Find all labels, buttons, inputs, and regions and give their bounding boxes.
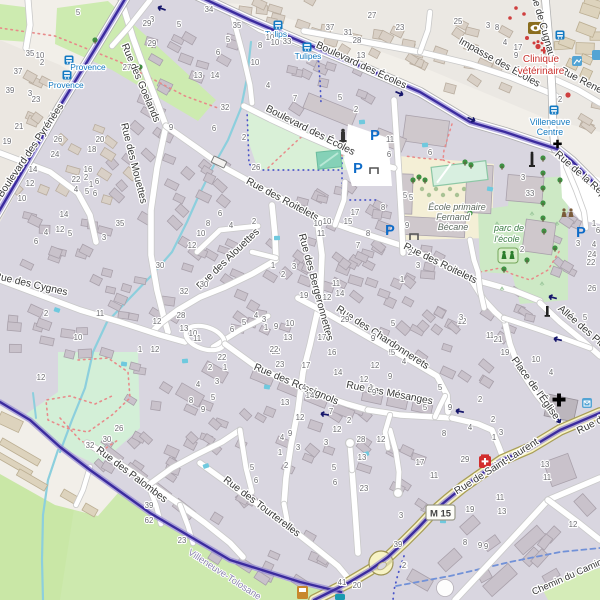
svg-text:5: 5 — [409, 193, 414, 202]
svg-text:39: 39 — [394, 540, 403, 549]
svg-text:9: 9 — [514, 51, 518, 60]
svg-text:24: 24 — [51, 150, 60, 159]
svg-text:2: 2 — [491, 415, 495, 424]
svg-text:2: 2 — [208, 363, 212, 372]
svg-text:4: 4 — [280, 433, 285, 442]
svg-text:12: 12 — [333, 425, 342, 434]
svg-text:11: 11 — [317, 229, 325, 238]
svg-text:28: 28 — [357, 435, 366, 444]
svg-text:32: 32 — [180, 287, 189, 296]
svg-text:5: 5 — [423, 403, 428, 412]
svg-text:6: 6 — [333, 478, 337, 487]
svg-text:10: 10 — [74, 333, 83, 342]
svg-text:12: 12 — [26, 179, 35, 188]
svg-text:32: 32 — [86, 441, 95, 450]
svg-text:1: 1 — [89, 180, 93, 189]
svg-text:8: 8 — [442, 429, 446, 438]
svg-text:26: 26 — [588, 284, 597, 293]
svg-text:5: 5 — [177, 20, 182, 29]
svg-text:2: 2 — [520, 245, 524, 254]
svg-text:5: 5 — [438, 383, 443, 392]
svg-text:30: 30 — [103, 435, 112, 444]
svg-text:Provence: Provence — [70, 62, 106, 72]
svg-text:17: 17 — [318, 333, 327, 342]
svg-text:6: 6 — [34, 237, 38, 246]
svg-text:14: 14 — [334, 368, 343, 377]
svg-text:5: 5 — [250, 463, 255, 472]
svg-text:14: 14 — [60, 210, 69, 219]
svg-text:6: 6 — [387, 150, 391, 159]
svg-text:3: 3 — [324, 438, 328, 447]
svg-text:32: 32 — [221, 103, 230, 112]
svg-text:23: 23 — [32, 95, 41, 104]
svg-text:8: 8 — [206, 219, 210, 228]
svg-text:5: 5 — [391, 319, 396, 328]
svg-text:8: 8 — [463, 538, 467, 547]
svg-text:31: 31 — [344, 28, 353, 37]
svg-text:26: 26 — [54, 135, 63, 144]
svg-text:19: 19 — [3, 137, 12, 146]
svg-text:12: 12 — [377, 435, 386, 444]
svg-text:2: 2 — [40, 58, 44, 67]
svg-text:Provence: Provence — [48, 80, 84, 90]
svg-text:9: 9 — [484, 542, 488, 551]
svg-text:1: 1 — [492, 433, 496, 442]
svg-text:10: 10 — [18, 194, 27, 203]
svg-text:3: 3 — [499, 428, 503, 437]
svg-text:parc de: parc de — [493, 223, 524, 233]
svg-text:13: 13 — [281, 398, 290, 407]
svg-text:4: 4 — [254, 311, 259, 320]
svg-text:10: 10 — [271, 38, 280, 47]
svg-text:39: 39 — [145, 501, 154, 510]
svg-text:5: 5 — [85, 187, 90, 196]
svg-text:P: P — [353, 161, 363, 177]
svg-text:10: 10 — [532, 355, 541, 364]
svg-text:11: 11 — [496, 493, 504, 502]
svg-text:29: 29 — [341, 315, 350, 324]
svg-text:23: 23 — [276, 360, 285, 369]
svg-text:13: 13 — [357, 51, 366, 60]
svg-text:5: 5 — [211, 393, 216, 402]
svg-text:21: 21 — [15, 122, 24, 131]
svg-text:8: 8 — [189, 396, 193, 405]
svg-text:2: 2 — [84, 173, 88, 182]
svg-text:18: 18 — [88, 145, 97, 154]
svg-text:Villeneuve: Villeneuve — [530, 117, 571, 127]
svg-text:École primaire: École primaire — [428, 202, 486, 212]
svg-text:3: 3 — [416, 261, 420, 270]
svg-text:5: 5 — [338, 93, 343, 102]
svg-text:1: 1 — [264, 323, 268, 332]
svg-text:10: 10 — [314, 219, 323, 228]
svg-text:9: 9 — [388, 372, 392, 381]
svg-text:5: 5 — [332, 463, 337, 472]
svg-text:Bécane: Bécane — [438, 222, 469, 232]
svg-text:2: 2 — [242, 133, 246, 142]
svg-text:1: 1 — [138, 345, 142, 354]
svg-text:2: 2 — [284, 461, 288, 470]
svg-text:13: 13 — [180, 324, 189, 333]
svg-text:7: 7 — [329, 407, 333, 416]
svg-text:22: 22 — [218, 353, 227, 362]
svg-text:28: 28 — [177, 311, 186, 320]
svg-text:Tulipes: Tulipes — [295, 51, 322, 61]
svg-text:3: 3 — [399, 511, 403, 520]
svg-text:12: 12 — [37, 373, 46, 382]
svg-text:4: 4 — [44, 228, 49, 237]
svg-text:3: 3 — [215, 377, 219, 386]
svg-text:3: 3 — [576, 239, 580, 248]
svg-text:Centre: Centre — [537, 127, 564, 137]
svg-text:13: 13 — [541, 460, 550, 469]
svg-text:10: 10 — [286, 319, 295, 328]
svg-text:6: 6 — [230, 325, 234, 334]
svg-text:5: 5 — [68, 229, 73, 238]
svg-text:14: 14 — [211, 71, 220, 80]
svg-text:8: 8 — [258, 41, 262, 50]
svg-text:11: 11 — [96, 309, 104, 318]
svg-text:33: 33 — [526, 189, 535, 198]
svg-text:11: 11 — [386, 135, 394, 144]
svg-text:14: 14 — [306, 391, 315, 400]
svg-text:5: 5 — [403, 191, 408, 200]
svg-text:6: 6 — [218, 209, 222, 218]
svg-text:M 15: M 15 — [430, 509, 452, 520]
svg-text:vétérinaire: vétérinaire — [518, 66, 565, 77]
svg-text:5: 5 — [391, 348, 396, 357]
svg-text:62: 62 — [145, 516, 154, 525]
svg-text:13: 13 — [194, 71, 203, 80]
svg-text:33: 33 — [283, 37, 292, 46]
svg-text:20: 20 — [96, 135, 105, 144]
svg-text:3: 3 — [486, 21, 490, 30]
svg-text:15: 15 — [344, 217, 353, 226]
svg-text:P: P — [370, 128, 380, 144]
svg-text:4: 4 — [592, 240, 597, 249]
svg-text:4: 4 — [266, 81, 271, 90]
svg-text:17: 17 — [416, 458, 425, 467]
svg-text:11: 11 — [543, 473, 551, 482]
svg-text:4: 4 — [402, 357, 407, 366]
svg-text:11: 11 — [430, 471, 438, 480]
svg-text:19: 19 — [300, 291, 309, 300]
svg-text:30: 30 — [156, 261, 165, 270]
svg-text:9: 9 — [169, 123, 173, 132]
svg-text:10: 10 — [251, 58, 260, 67]
svg-text:4: 4 — [549, 368, 554, 377]
svg-text:13: 13 — [498, 507, 507, 516]
svg-text:27: 27 — [368, 11, 377, 20]
svg-text:19: 19 — [466, 505, 475, 514]
svg-text:1: 1 — [278, 448, 282, 457]
svg-text:12: 12 — [153, 317, 162, 326]
svg-text:6: 6 — [428, 148, 432, 157]
svg-text:17: 17 — [351, 208, 360, 217]
svg-text:7: 7 — [356, 241, 360, 250]
svg-text:21: 21 — [494, 335, 503, 344]
svg-text:12: 12 — [371, 361, 380, 370]
svg-text:9: 9 — [372, 388, 376, 397]
svg-text:9: 9 — [448, 403, 452, 412]
svg-text:5: 5 — [583, 313, 588, 322]
svg-text:6: 6 — [596, 226, 600, 235]
svg-text:11: 11 — [193, 334, 201, 343]
svg-text:9: 9 — [288, 429, 292, 438]
svg-text:1: 1 — [271, 261, 275, 270]
svg-text:12: 12 — [151, 345, 160, 354]
svg-text:P: P — [385, 223, 395, 239]
svg-text:37: 37 — [14, 67, 23, 76]
svg-text:9: 9 — [274, 322, 278, 331]
svg-text:6: 6 — [212, 124, 216, 133]
svg-text:13: 13 — [358, 453, 367, 462]
svg-text:8: 8 — [366, 229, 370, 238]
svg-text:9: 9 — [371, 334, 375, 343]
svg-text:35: 35 — [116, 219, 125, 228]
svg-text:29: 29 — [143, 19, 152, 28]
svg-text:l'école: l'école — [494, 234, 519, 244]
svg-text:2: 2 — [354, 105, 358, 114]
svg-text:Fernand: Fernand — [436, 212, 471, 222]
svg-text:6: 6 — [254, 476, 258, 485]
svg-text:2: 2 — [402, 561, 406, 570]
svg-text:3: 3 — [521, 173, 525, 182]
svg-text:27: 27 — [123, 63, 132, 72]
svg-text:20: 20 — [353, 581, 362, 590]
svg-text:30: 30 — [200, 280, 209, 289]
svg-text:17: 17 — [302, 361, 311, 370]
svg-text:9: 9 — [405, 221, 409, 230]
svg-text:13: 13 — [284, 333, 293, 342]
svg-text:9: 9 — [201, 405, 205, 414]
svg-text:16: 16 — [328, 348, 337, 357]
svg-text:8: 8 — [381, 203, 385, 212]
svg-text:35: 35 — [233, 21, 242, 30]
svg-text:28: 28 — [353, 36, 362, 45]
svg-text:3: 3 — [296, 443, 300, 452]
svg-text:2: 2 — [252, 217, 256, 226]
svg-text:29: 29 — [461, 455, 470, 464]
svg-text:2: 2 — [408, 248, 412, 257]
svg-text:26: 26 — [115, 424, 124, 433]
svg-text:5: 5 — [76, 8, 81, 17]
svg-text:35: 35 — [26, 49, 35, 58]
svg-text:12: 12 — [296, 413, 305, 422]
svg-text:1: 1 — [400, 275, 404, 284]
svg-text:12: 12 — [56, 225, 65, 234]
svg-text:5: 5 — [242, 318, 247, 327]
svg-text:14: 14 — [29, 165, 38, 174]
svg-text:6: 6 — [216, 48, 220, 57]
svg-text:2: 2 — [478, 395, 482, 404]
svg-text:1: 1 — [223, 363, 227, 372]
svg-text:29: 29 — [148, 39, 157, 48]
svg-text:4: 4 — [468, 423, 473, 432]
svg-text:9: 9 — [478, 541, 482, 550]
svg-text:12: 12 — [323, 293, 332, 302]
svg-text:10: 10 — [197, 229, 206, 238]
svg-text:5: 5 — [226, 35, 231, 44]
svg-text:14: 14 — [336, 289, 345, 298]
svg-text:37: 37 — [326, 23, 335, 32]
svg-text:4: 4 — [74, 185, 79, 194]
svg-text:7: 7 — [293, 94, 297, 103]
svg-text:22: 22 — [587, 258, 596, 267]
svg-text:41: 41 — [338, 578, 347, 587]
svg-text:3: 3 — [292, 262, 296, 271]
svg-text:12: 12 — [569, 520, 578, 529]
svg-text:34: 34 — [205, 5, 214, 14]
svg-text:23: 23 — [360, 484, 369, 493]
svg-text:6: 6 — [95, 177, 99, 186]
svg-text:25: 25 — [454, 17, 463, 26]
svg-text:1: 1 — [592, 219, 596, 228]
svg-text:26: 26 — [252, 163, 261, 172]
svg-text:19: 19 — [501, 348, 510, 357]
svg-text:4: 4 — [503, 38, 508, 47]
svg-text:22: 22 — [72, 175, 81, 184]
svg-text:Clinique: Clinique — [523, 54, 560, 65]
svg-text:23: 23 — [178, 536, 187, 545]
svg-text:3: 3 — [459, 313, 463, 322]
svg-text:8: 8 — [495, 23, 499, 32]
svg-text:4: 4 — [196, 380, 201, 389]
svg-text:11: 11 — [332, 279, 340, 288]
svg-text:12: 12 — [360, 375, 369, 384]
svg-text:23: 23 — [396, 23, 405, 32]
svg-text:12: 12 — [188, 241, 197, 250]
svg-text:6: 6 — [93, 189, 97, 198]
svg-text:10: 10 — [323, 217, 332, 226]
svg-text:39: 39 — [6, 86, 15, 95]
svg-text:2: 2 — [281, 270, 285, 279]
svg-text:2: 2 — [558, 95, 562, 104]
svg-text:4: 4 — [229, 221, 234, 230]
svg-text:3: 3 — [102, 233, 106, 242]
svg-text:2: 2 — [347, 416, 351, 425]
svg-text:22: 22 — [270, 345, 279, 354]
svg-text:2: 2 — [44, 309, 48, 318]
